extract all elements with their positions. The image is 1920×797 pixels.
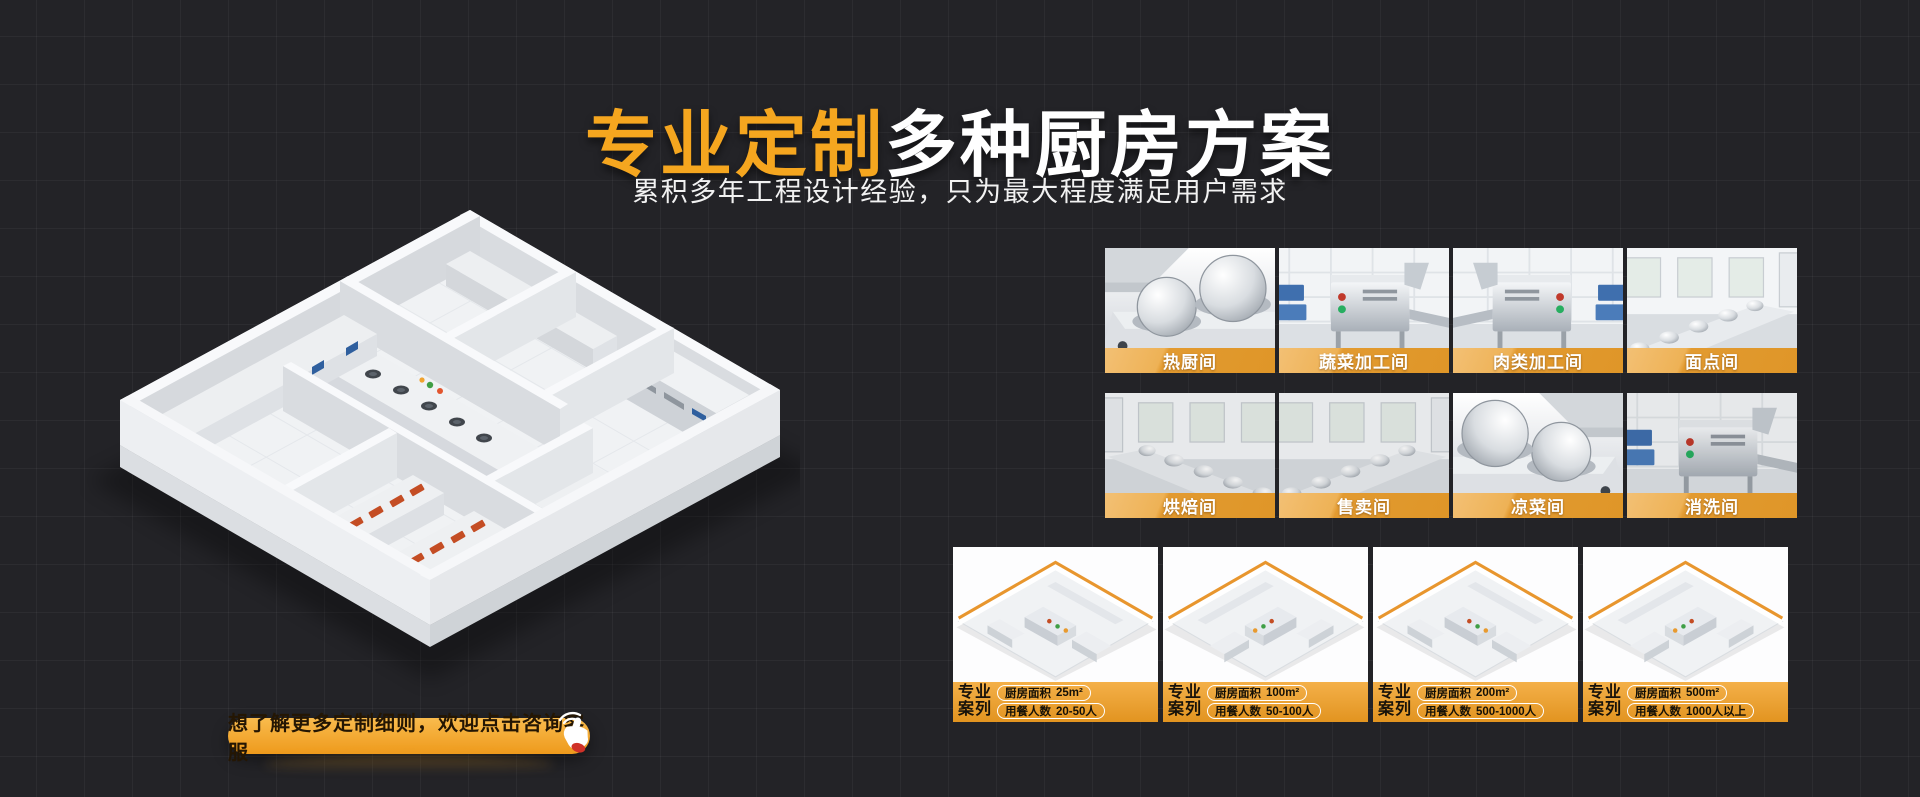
- diners-capsule: 用餐人数1000人以上: [1627, 703, 1754, 719]
- capsule-label: 厨房面积: [1635, 685, 1681, 701]
- room-label-band: 烘焙间: [1105, 493, 1275, 518]
- area-capsule: 厨房面积25m²: [997, 685, 1091, 701]
- case-footer: 专业案列 厨房面积100m² 用餐人数50-100人: [1163, 682, 1368, 722]
- capsule-label: 用餐人数: [1005, 703, 1051, 719]
- room-tile-dishwashing[interactable]: 消洗间: [1627, 393, 1797, 518]
- room-tile-baking[interactable]: 烘焙间: [1105, 393, 1275, 518]
- case-tag: 专业案列: [1378, 685, 1412, 719]
- diners-capsule: 用餐人数500-1000人: [1417, 703, 1544, 719]
- room-label: 消洗间: [1685, 493, 1739, 518]
- room-tile-cold-dish[interactable]: 凉菜间: [1453, 393, 1623, 518]
- case-footer: 专业案列 厨房面积500m² 用餐人数1000人以上: [1583, 682, 1788, 722]
- capsule-label: 用餐人数: [1215, 703, 1261, 719]
- room-tile-meat-processing[interactable]: 肉类加工间: [1453, 248, 1623, 373]
- room-tile-vegetable-processing[interactable]: 蔬菜加工间: [1279, 248, 1449, 373]
- isometric-kitchen-floorplan: [80, 180, 800, 720]
- case-tag: 专业案列: [958, 685, 992, 719]
- room-label-band: 售卖间: [1279, 493, 1449, 518]
- capsule-value: 200m²: [1476, 687, 1509, 699]
- case-photo: [1583, 547, 1788, 682]
- diners-capsule: 用餐人数50-100人: [1207, 703, 1321, 719]
- room-label: 面点间: [1685, 348, 1739, 373]
- case-card-25m2[interactable]: 专业案列 厨房面积25m² 用餐人数20-50人: [953, 547, 1158, 722]
- capsule-value: 500m²: [1686, 687, 1719, 699]
- case-tag: 专业案列: [1588, 685, 1622, 719]
- capsule-value: 100m²: [1266, 687, 1299, 699]
- room-label: 售卖间: [1337, 493, 1391, 518]
- click-hand-icon: [550, 706, 598, 754]
- page-background: { "hero": { "title_accent": "专业定制", "tit…: [0, 0, 1920, 797]
- case-footer: 专业案列 厨房面积25m² 用餐人数20-50人: [953, 682, 1158, 722]
- cta-label: 想了解更多定制细则，欢迎点击咨询客服: [228, 707, 590, 765]
- area-capsule: 厨房面积100m²: [1207, 685, 1307, 701]
- capsule-label: 厨房面积: [1005, 685, 1051, 701]
- capsule-value: 50-100人: [1266, 703, 1313, 719]
- case-card-200m2[interactable]: 专业案列 厨房面积200m² 用餐人数500-1000人: [1373, 547, 1578, 722]
- room-tile-hot-kitchen[interactable]: 热厨间: [1105, 248, 1275, 373]
- capsule-value: 25m²: [1056, 687, 1083, 699]
- room-label-band: 肉类加工间: [1453, 348, 1623, 373]
- case-card-500m2[interactable]: 专业案列 厨房面积500m² 用餐人数1000人以上: [1583, 547, 1788, 722]
- room-label: 肉类加工间: [1493, 348, 1583, 373]
- case-photo: [1163, 547, 1368, 682]
- capsule-value: 20-50人: [1056, 703, 1097, 719]
- case-row: 专业案列 厨房面积25m² 用餐人数20-50人 专业案列 厨房面积100m² …: [953, 547, 1788, 722]
- case-photo: [953, 547, 1158, 682]
- case-photo: [1373, 547, 1578, 682]
- capsule-label: 厨房面积: [1215, 685, 1261, 701]
- case-card-100m2[interactable]: 专业案列 厨房面积100m² 用餐人数50-100人: [1163, 547, 1368, 722]
- case-footer: 专业案列 厨房面积200m² 用餐人数500-1000人: [1373, 682, 1578, 722]
- room-label-band: 消洗间: [1627, 493, 1797, 518]
- diners-capsule: 用餐人数20-50人: [997, 703, 1105, 719]
- room-label-band: 蔬菜加工间: [1279, 348, 1449, 373]
- room-label-band: 面点间: [1627, 348, 1797, 373]
- capsule-label: 用餐人数: [1425, 703, 1471, 719]
- capsule-value: 500-1000人: [1476, 703, 1536, 719]
- room-label-band: 热厨间: [1105, 348, 1275, 373]
- room-label-band: 凉菜间: [1453, 493, 1623, 518]
- capsule-label: 厨房面积: [1425, 685, 1471, 701]
- room-tile-pastry[interactable]: 面点间: [1627, 248, 1797, 373]
- cta-button[interactable]: 想了解更多定制细则，欢迎点击咨询客服: [228, 718, 590, 754]
- area-capsule: 厨房面积500m²: [1627, 685, 1727, 701]
- room-label: 蔬菜加工间: [1319, 348, 1409, 373]
- room-label: 烘焙间: [1163, 493, 1217, 518]
- room-label: 凉菜间: [1511, 493, 1565, 518]
- room-tile-serving[interactable]: 售卖间: [1279, 393, 1449, 518]
- case-tag: 专业案列: [1168, 685, 1202, 719]
- room-grid: 热厨间 蔬菜加工间 肉类加工间 面点间 烘焙间 售卖间 凉菜间 消洗间: [1105, 248, 1797, 518]
- area-capsule: 厨房面积200m²: [1417, 685, 1517, 701]
- room-label: 热厨间: [1163, 348, 1217, 373]
- capsule-value: 1000人以上: [1686, 703, 1746, 719]
- capsule-label: 用餐人数: [1635, 703, 1681, 719]
